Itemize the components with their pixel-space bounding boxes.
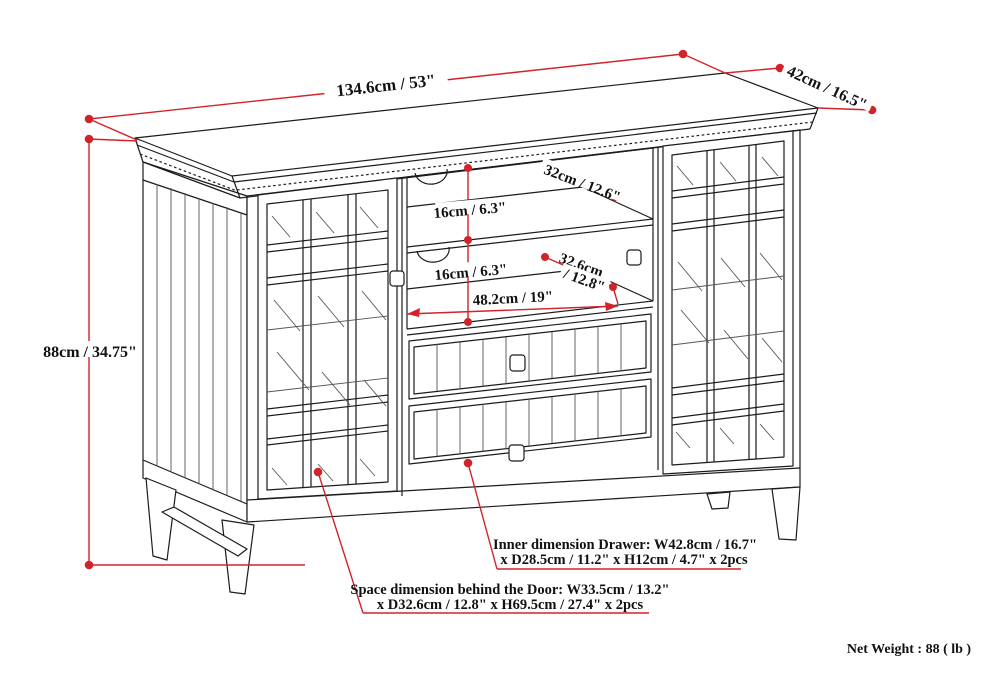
net-weight-label: Net Weight : 88 ( lb ) [847, 642, 972, 657]
door-note-line1: Space dimension behind the Door: W33.5cm… [350, 582, 669, 598]
overall-height-label: 88cm / 34.75" [43, 341, 137, 361]
back-right-leg [707, 492, 730, 509]
door-note-line2: x D32.6cm / 12.8" x H69.5cm / 27.4" x 2p… [377, 597, 644, 613]
drawer-inner-note: Inner dimension Drawer: W42.8cm / 16.7" … [493, 537, 757, 568]
svg-text:88cm / 34.75": 88cm / 34.75" [43, 344, 137, 361]
right-door-knob [627, 250, 641, 265]
left-door-knob [390, 271, 404, 286]
overall-width-label: 134.6cm / 53" [323, 67, 449, 101]
drawer-lower-knob [509, 445, 524, 461]
front-right-leg [772, 487, 800, 540]
drawer-upper-knob [510, 355, 525, 371]
svg-text:134.6cm / 53": 134.6cm / 53" [335, 71, 436, 101]
drawer-note-line1: Inner dimension Drawer: W42.8cm / 16.7" [493, 537, 757, 553]
left-glass-door [258, 178, 404, 499]
left-side-panel [143, 162, 247, 522]
diagram-canvas: 134.6cm / 53" 42cm / 16.5" 88cm / 34.75"… [0, 0, 1000, 678]
door-space-note: Space dimension behind the Door: W33.5cm… [350, 582, 669, 613]
furniture-dimension-diagram: 134.6cm / 53" 42cm / 16.5" 88cm / 34.75"… [0, 0, 1000, 678]
drawer-note-line2: x D28.5cm / 11.2" x H12cm / 4.7" x 2pcs [500, 552, 748, 568]
back-left-leg [146, 478, 176, 560]
front-left-leg [222, 520, 254, 594]
